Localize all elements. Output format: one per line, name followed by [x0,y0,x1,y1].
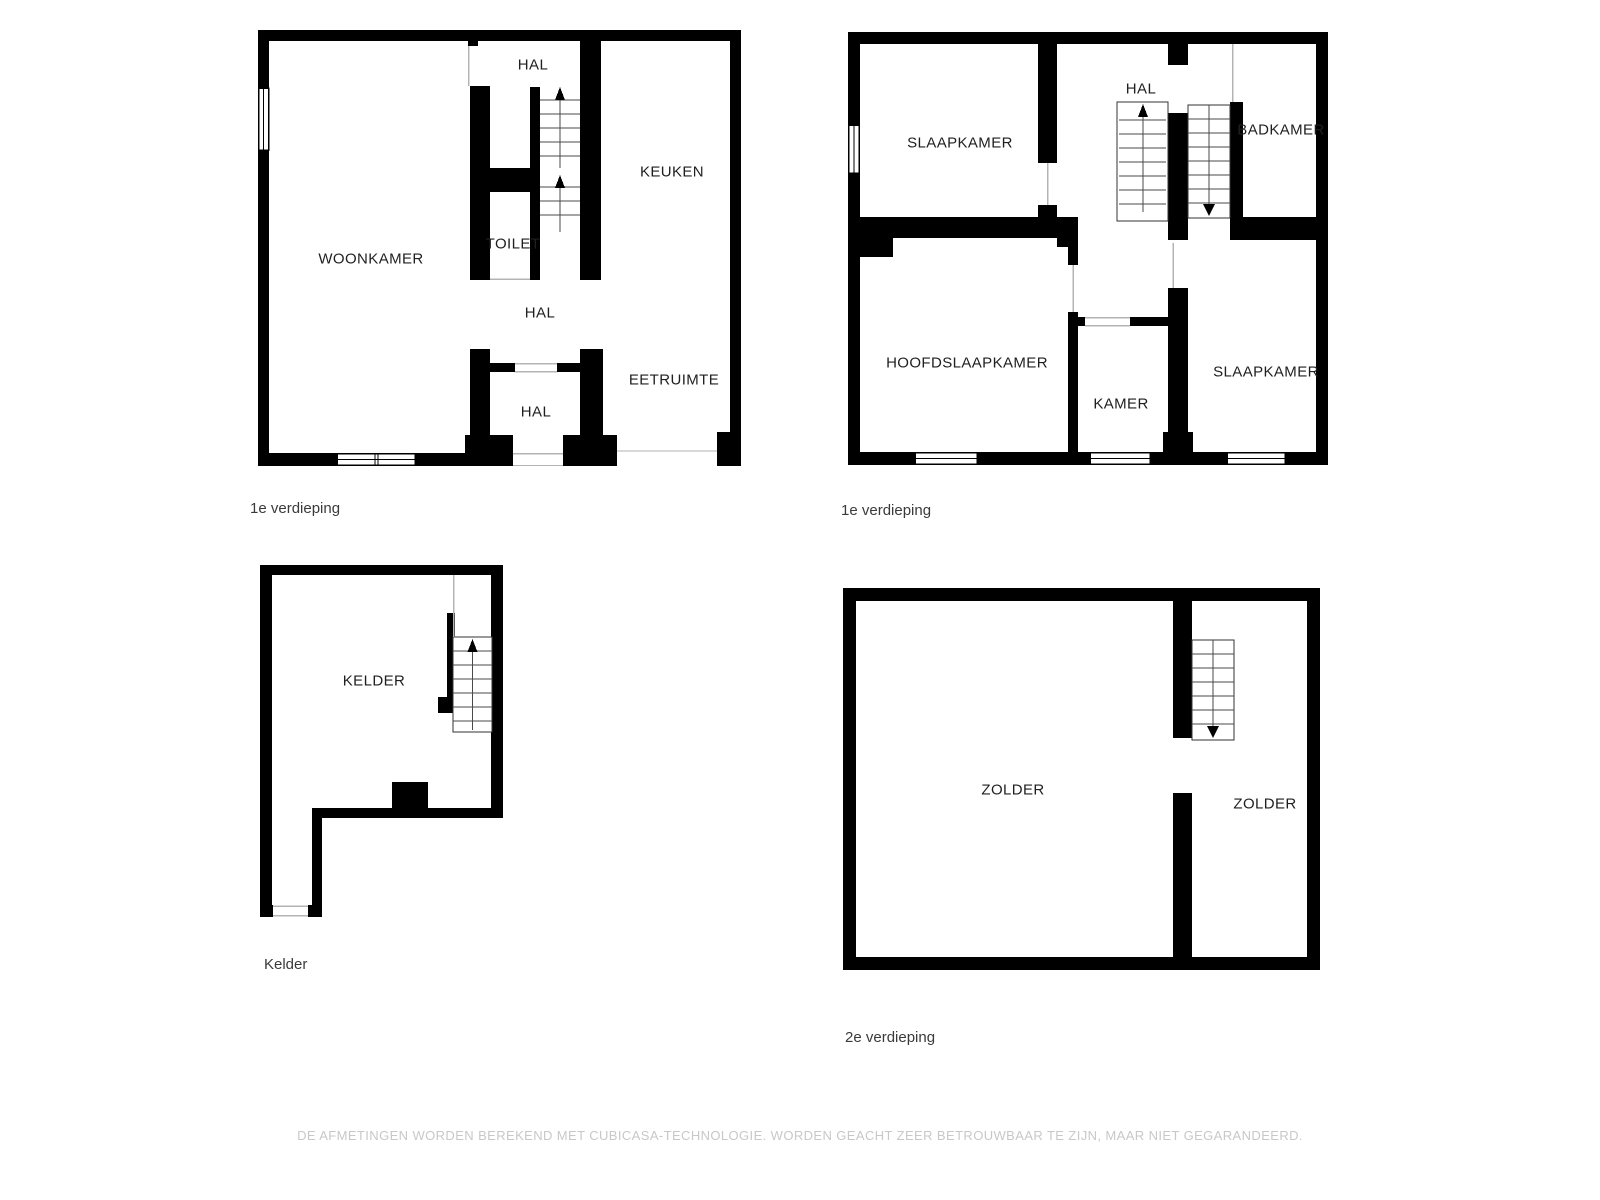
floorplan-basement-drawing [260,565,503,917]
stairs-up [540,175,580,232]
walls [260,565,503,917]
disclaimer-text: DE AFMETINGEN WORDEN BEREKEND MET CUBICA… [0,1128,1600,1143]
room-label-slaapkamer-1: SLAAPKAMER [907,135,1013,152]
window [337,453,415,466]
floorplan-first-floor-drawing [848,32,1328,465]
window [1227,453,1285,465]
room-label-hal: HAL [1126,81,1156,98]
room-label-badkamer: BADKAMER [1237,122,1324,139]
walls [843,588,1320,970]
room-label-zolder-left: ZOLDER [981,782,1044,799]
floor-label-ground-floor: 1e verdieping [250,500,340,517]
stairs-up [453,637,492,732]
floorplan-attic-drawing [843,588,1320,970]
floorplan-page: WOONKAMER HAL KEUKEN TOILET HAL HAL EETR… [0,0,1600,1200]
room-label-toilet: TOILET [486,236,541,253]
window [915,453,977,465]
floorplan-first-floor: SLAAPKAMER HAL BADKAMER HOOFDSLAAPKAMER … [848,32,1328,465]
room-label-keuken: KEUKEN [640,164,704,181]
stairs-up [1117,102,1168,221]
room-label-woonkamer: WOONKAMER [318,251,423,268]
floorplan-basement: KELDER [260,565,503,917]
door-openings [273,575,454,916]
stairs-up-arrow-icon [555,87,565,100]
room-label-kelder: KELDER [343,673,405,690]
stairs-down [1188,105,1230,218]
floor-label-attic: 2e verdieping [845,1029,935,1046]
window [849,125,860,173]
stairs-up-arrow-icon [555,175,565,188]
room-label-kamer: KAMER [1093,396,1148,413]
room-label-slaapkamer-2: SLAAPKAMER [1213,364,1319,381]
room-label-hoofdslaapkamer: HOOFDSLAAPKAMER [886,355,1048,372]
walls [848,32,1328,465]
room-label-zolder-right: ZOLDER [1233,796,1296,813]
window [1090,453,1150,465]
room-label-hal-mid: HAL [525,305,555,322]
floor-label-basement: Kelder [264,956,307,973]
floorplan-attic: ZOLDER ZOLDER [843,588,1320,970]
room-label-eetruimte: EETRUIMTE [629,372,719,389]
floor-label-first-floor: 1e verdieping [841,502,931,519]
room-label-hal-entry: HAL [521,404,551,421]
floorplan-ground-floor: WOONKAMER HAL KEUKEN TOILET HAL HAL EETR… [258,30,741,466]
room-label-hal-top: HAL [518,57,548,74]
window [259,88,269,150]
stairs-up [540,87,580,168]
stairs-down [1192,640,1234,740]
